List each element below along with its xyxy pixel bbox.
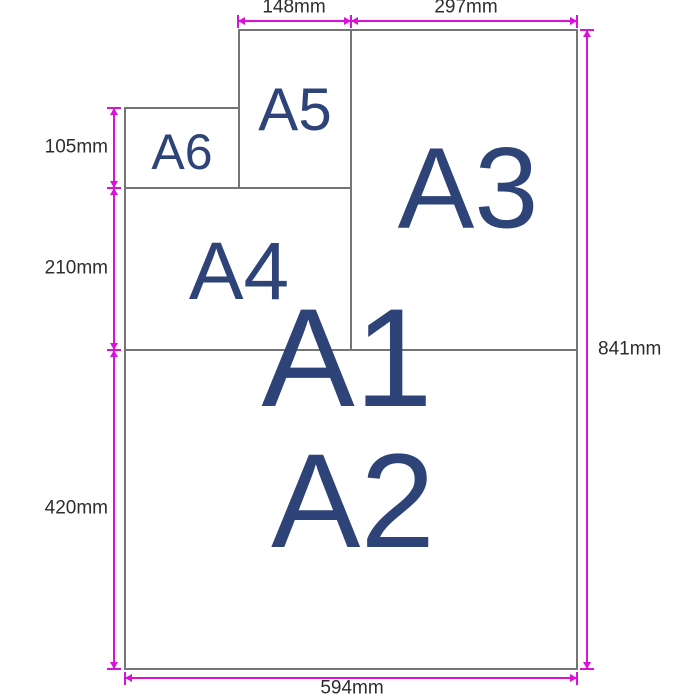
a3-label: A3 xyxy=(398,132,539,247)
dimension-arrow xyxy=(583,662,591,669)
dimension-arrow xyxy=(110,181,118,188)
dim-420mm-label: 420mm xyxy=(45,499,108,520)
dim-148mm-label: 148mm xyxy=(262,0,325,18)
dimension-arrow xyxy=(110,350,118,357)
dim-210mm-label: 210mm xyxy=(45,259,108,280)
dim-594mm-label: 594mm xyxy=(320,679,383,700)
dimension-arrow xyxy=(110,343,118,350)
dim-841mm-label: 841mm xyxy=(598,340,661,361)
dimension-line-right xyxy=(586,30,588,669)
a5-label: A5 xyxy=(258,80,331,140)
dimension-line-top xyxy=(238,20,578,22)
dimension-arrow xyxy=(110,662,118,669)
dimension-arrow xyxy=(351,17,358,25)
a2-label: A2 xyxy=(271,435,435,569)
dimension-arrow xyxy=(344,17,351,25)
dimension-arrow xyxy=(570,674,577,682)
dim-105mm-label: 105mm xyxy=(45,138,108,159)
dimension-arrow xyxy=(238,17,245,25)
dim-297mm-label: 297mm xyxy=(434,0,497,18)
dimension-arrow xyxy=(110,108,118,115)
dimension-arrow xyxy=(125,674,132,682)
dimension-arrow xyxy=(570,17,577,25)
paper-sizes-diagram: A6 A5 A4 A3 A1 A2 148mm 297mm 105mm 210m… xyxy=(0,0,700,700)
a1-label: A1 xyxy=(261,288,432,428)
dimension-arrow xyxy=(583,30,591,37)
dimension-arrow xyxy=(110,188,118,195)
a6-label: A6 xyxy=(151,127,212,177)
